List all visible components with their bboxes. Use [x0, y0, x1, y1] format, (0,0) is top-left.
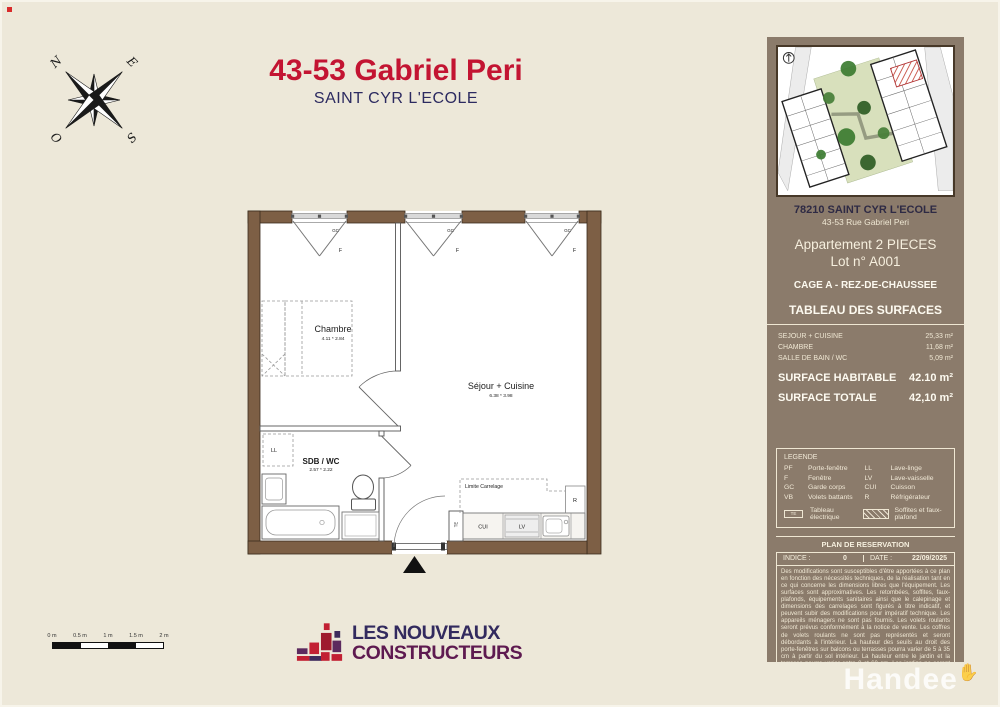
entrance-arrow: [403, 556, 426, 573]
developer-logo: LES NOUVEAUX CONSTRUCTEURS: [295, 621, 522, 666]
date-label: DATE :: [863, 555, 905, 562]
address-title: 78210 SAINT CYR L'ECOLE: [776, 204, 955, 216]
logo-line-1: LES NOUVEAUX: [352, 624, 522, 643]
compass-s-label: S: [124, 130, 140, 146]
divider: [767, 324, 964, 325]
label-limite-carrelage: Limite Carrelage: [465, 484, 503, 490]
scale-tick: 2 m: [159, 633, 168, 639]
page-subtitle: SAINT CYR L'ECOLE: [246, 90, 546, 108]
page-title: 43-53 Gabriel Peri: [246, 54, 546, 88]
reservation-plan-title: PLAN DE RESERVATION: [776, 536, 955, 553]
scale-bar: 0 m 0.5 m 1 m 1.5 m 2 m: [52, 633, 164, 649]
logo-line-2: CONSTRUCTEURS: [352, 644, 522, 663]
watermark: Handee✋: [843, 663, 980, 697]
hand-icon: ✋: [958, 663, 980, 682]
compass-n-label: N: [47, 53, 65, 71]
legend-title: LEGENDE: [784, 454, 947, 461]
room-label-sejour: Séjour + Cuisine: [468, 381, 534, 391]
legend-abbr: GC: [784, 484, 808, 491]
surface-value: 25,33 m²: [925, 331, 953, 342]
room-dims-sejour: 6.38 * 3.98: [489, 393, 513, 399]
surface-row: CHAMBRE 11,68 m²: [776, 342, 955, 353]
window-gc-label: GC: [332, 228, 340, 233]
scale-tick: 1 m: [103, 633, 112, 639]
soffit-hatch-icon: [863, 509, 889, 519]
toilet: [353, 475, 374, 499]
window-f-label: F: [339, 248, 342, 254]
legend-label: Lave-vaisselle: [891, 475, 948, 482]
scale-tick: 0.5 m: [73, 633, 87, 639]
surface-totale-row: SURFACE TOTALE 42,10 m²: [776, 392, 955, 404]
compass-o-label: O: [48, 130, 65, 147]
floor: [248, 211, 601, 554]
label-ll: LL: [271, 448, 277, 454]
indice-label: INDICE :: [777, 555, 827, 562]
compass-rose-icon: N E O S: [40, 46, 148, 154]
vanity: [342, 512, 379, 539]
plan-sheet: 43-53 Gabriel Peri SAINT CYR L'ECOLE N E…: [0, 0, 1000, 707]
legend-label: Volets battants: [808, 494, 865, 501]
label-lv: LV: [519, 525, 526, 531]
label-r: R: [573, 498, 577, 504]
window-f-label: F: [456, 248, 459, 254]
surface-row: SEJOUR + CUISINE 25,33 m²: [776, 331, 955, 342]
surface-habitable-row: SURFACE HABITABLE 42.10 m²: [776, 372, 955, 384]
scale-bar-strip: [52, 642, 164, 649]
legend-abbr: LL: [865, 465, 891, 472]
address-subtitle: 43-53 Rue Gabriel Peri: [776, 217, 955, 227]
scale-tick: 1.5 m: [129, 633, 143, 639]
label-te: TE: [454, 522, 459, 528]
legend-label: Soffites et faux-plafond: [895, 507, 948, 521]
surface-totale-label: SURFACE TOTALE: [778, 392, 877, 404]
floor-plan: GC F GC F GC F: [245, 208, 613, 578]
window-gc-label: GC: [564, 228, 572, 233]
header: 43-53 Gabriel Peri SAINT CYR L'ECOLE: [246, 54, 546, 108]
lot-number: Lot n° A001: [776, 254, 955, 271]
legend-label: Réfrigérateur: [891, 494, 948, 501]
watermark-text: Handee: [843, 663, 957, 696]
surface-value: 11,68 m²: [926, 342, 953, 353]
reservation-index-row: INDICE : 0 DATE : 22/09/2025: [776, 553, 955, 566]
legend-box: LEGENDE PF Porte-fenêtre LL Lave-linge F…: [776, 448, 955, 528]
building-stage: CAGE A - REZ-DE-CHAUSSEE: [776, 280, 955, 291]
apartment-type: Appartement 2 PIECES: [776, 237, 955, 254]
legend-label: Fenêtre: [808, 475, 865, 482]
bathtub: [262, 506, 339, 539]
date-value: 22/09/2025: [905, 555, 954, 562]
surface-label: CHAMBRE: [778, 342, 813, 353]
surface-label: SALLE DE BAIN / WC: [778, 353, 847, 364]
legend-label: Lave-linge: [891, 465, 948, 472]
legend-label: Garde corps: [808, 484, 865, 491]
surface-row: SALLE DE BAIN / WC 5,09 m²: [776, 353, 955, 364]
legend-abbr: VB: [784, 494, 808, 501]
logo-mosaic-icon: [295, 621, 345, 666]
legend-abbr: CUI: [865, 484, 891, 491]
electrical-panel-icon: TE: [784, 510, 803, 518]
surface-totale-value: 42,10 m²: [909, 392, 953, 404]
indice-value: 0: [827, 555, 863, 562]
surface-habitable-value: 42.10 m²: [909, 372, 953, 384]
site-map: [776, 45, 955, 197]
red-dot: [7, 7, 12, 12]
info-sidebar: 78210 SAINT CYR L'ECOLE 43-53 Rue Gabrie…: [767, 37, 964, 662]
window-gc-label: GC: [447, 228, 455, 233]
surface-value: 5,09 m²: [929, 353, 953, 364]
legend-abbr: LV: [865, 475, 891, 482]
room-dims-chambre: 4.11 * 2.84: [322, 336, 345, 342]
legend-abbr: F: [784, 475, 808, 482]
legend-abbr: PF: [784, 465, 808, 472]
room-label-chambre: Chambre: [314, 324, 351, 334]
scale-tick: 0 m: [47, 633, 56, 639]
surfaces-table-title: TABLEAU DES SURFACES: [776, 303, 955, 317]
legend-label: Porte-fenêtre: [808, 465, 865, 472]
legend-label: Tableau électrique: [810, 507, 863, 521]
compass-e-label: E: [123, 53, 140, 70]
room-label-sdb: SDB / WC: [303, 457, 340, 466]
surface-habitable-label: SURFACE HABITABLE: [778, 372, 896, 384]
legend-abbr: R: [865, 494, 891, 501]
room-dims-sdb: 2.57 * 2.22: [309, 467, 333, 473]
window-f-label: F: [573, 248, 576, 254]
surface-label: SEJOUR + CUISINE: [778, 331, 843, 342]
label-cui: CUI: [478, 525, 488, 531]
legend-label: Cuisson: [891, 484, 948, 491]
legal-disclaimer: Des modifications sont susceptibles d'êt…: [776, 566, 955, 662]
